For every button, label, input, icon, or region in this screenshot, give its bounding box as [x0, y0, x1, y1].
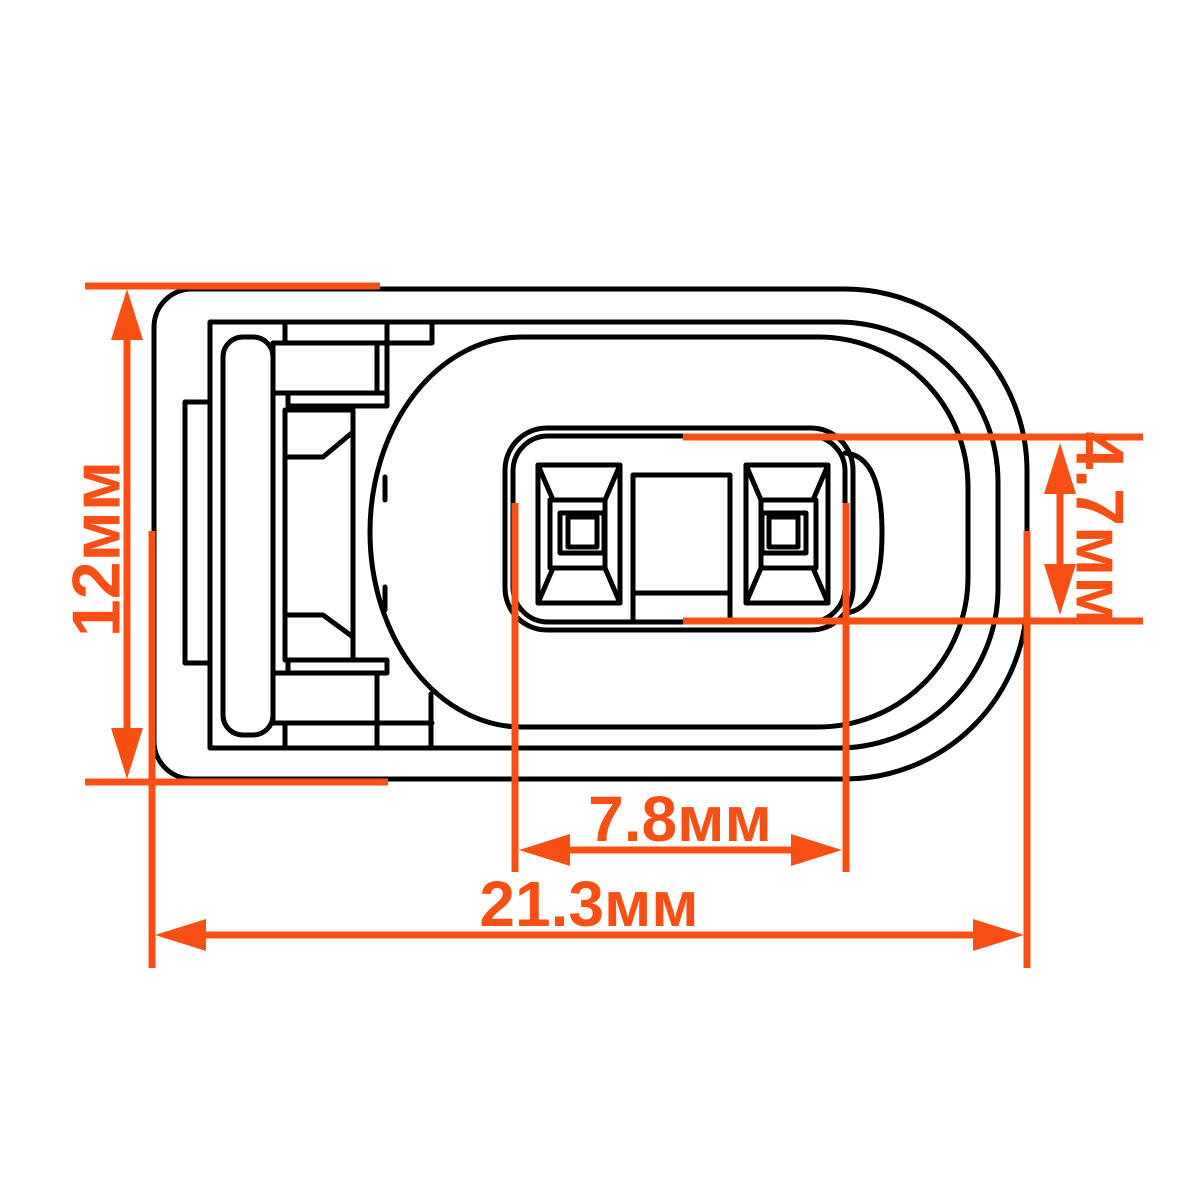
latch-top-tooth: [288, 393, 387, 406]
latch-top-ribs: [285, 322, 432, 393]
label-slot-width: 7.8мм: [588, 783, 772, 855]
terminal-right-pin: [769, 517, 798, 547]
dimension-lines-group: [85, 286, 1143, 968]
terminal-left: [538, 465, 620, 603]
latch-bottom-block: [273, 673, 377, 723]
dimension-labels-group: 12мм 4.7мм 7.8мм 21.3мм: [58, 431, 1137, 940]
arrow-left-icon: [155, 919, 206, 951]
arrow-down-icon: [111, 728, 143, 779]
arrow-left-slot-icon: [519, 834, 570, 866]
terminal-right: [746, 465, 828, 603]
center-key-block: [633, 475, 730, 622]
connector-outline-group: [154, 289, 1027, 779]
latch-top-block: [273, 343, 377, 393]
retainer-body: [285, 410, 353, 660]
connector-dimension-drawing: 12мм 4.7мм 7.8мм 21.3мм: [0, 0, 1199, 1200]
footer: AECC142: [0, 1058, 1199, 1178]
terminal-left-pin: [568, 517, 597, 547]
shroud-outline: [370, 337, 968, 727]
arrow-right-slot-icon: [791, 834, 842, 866]
label-overall-width: 21.3мм: [479, 868, 698, 940]
label-overall-height: 12мм: [58, 461, 134, 637]
arrow-right-icon: [973, 919, 1024, 951]
label-slot-height: 4.7мм: [1062, 431, 1138, 626]
arrow-up-icon: [111, 289, 143, 340]
wire-seal: [223, 337, 273, 735]
retainer-chamfers: [285, 432, 353, 637]
cavity-outer: [505, 428, 853, 630]
rear-flange: [185, 402, 210, 663]
page: 12мм 4.7мм 7.8мм 21.3мм AECC142: [0, 0, 1199, 1200]
